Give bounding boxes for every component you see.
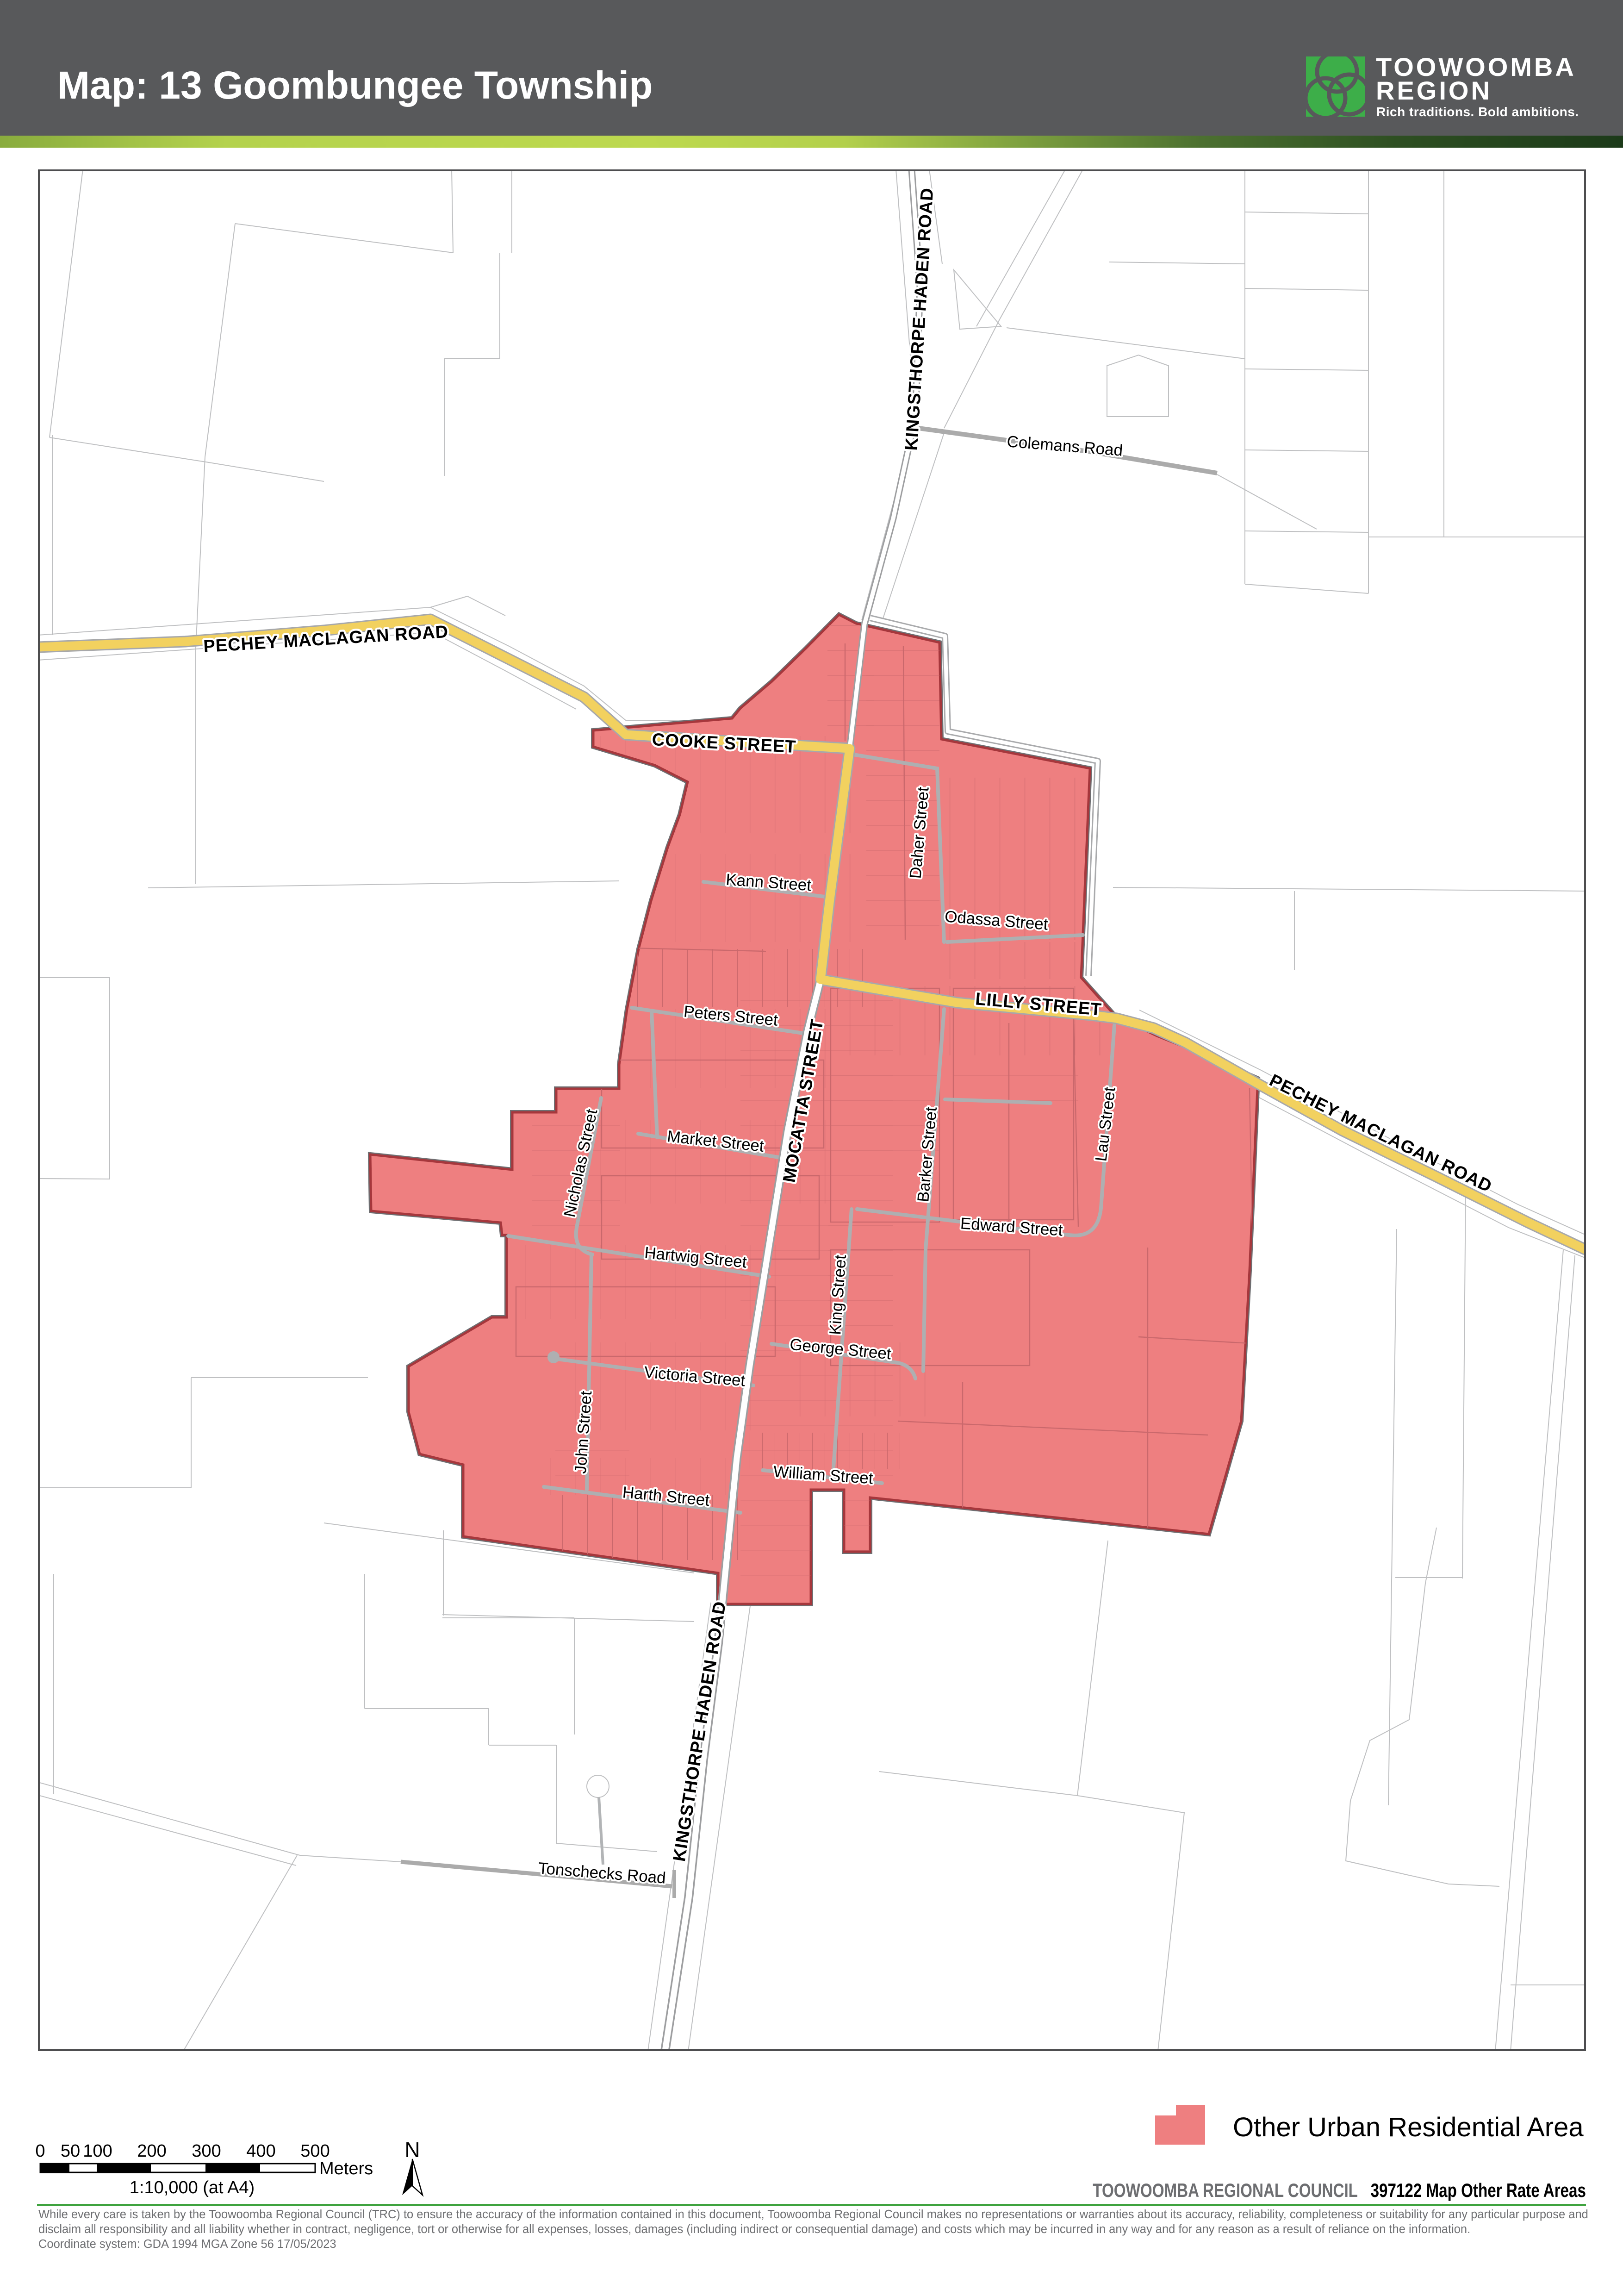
svg-text:N: N [404,2140,420,2162]
